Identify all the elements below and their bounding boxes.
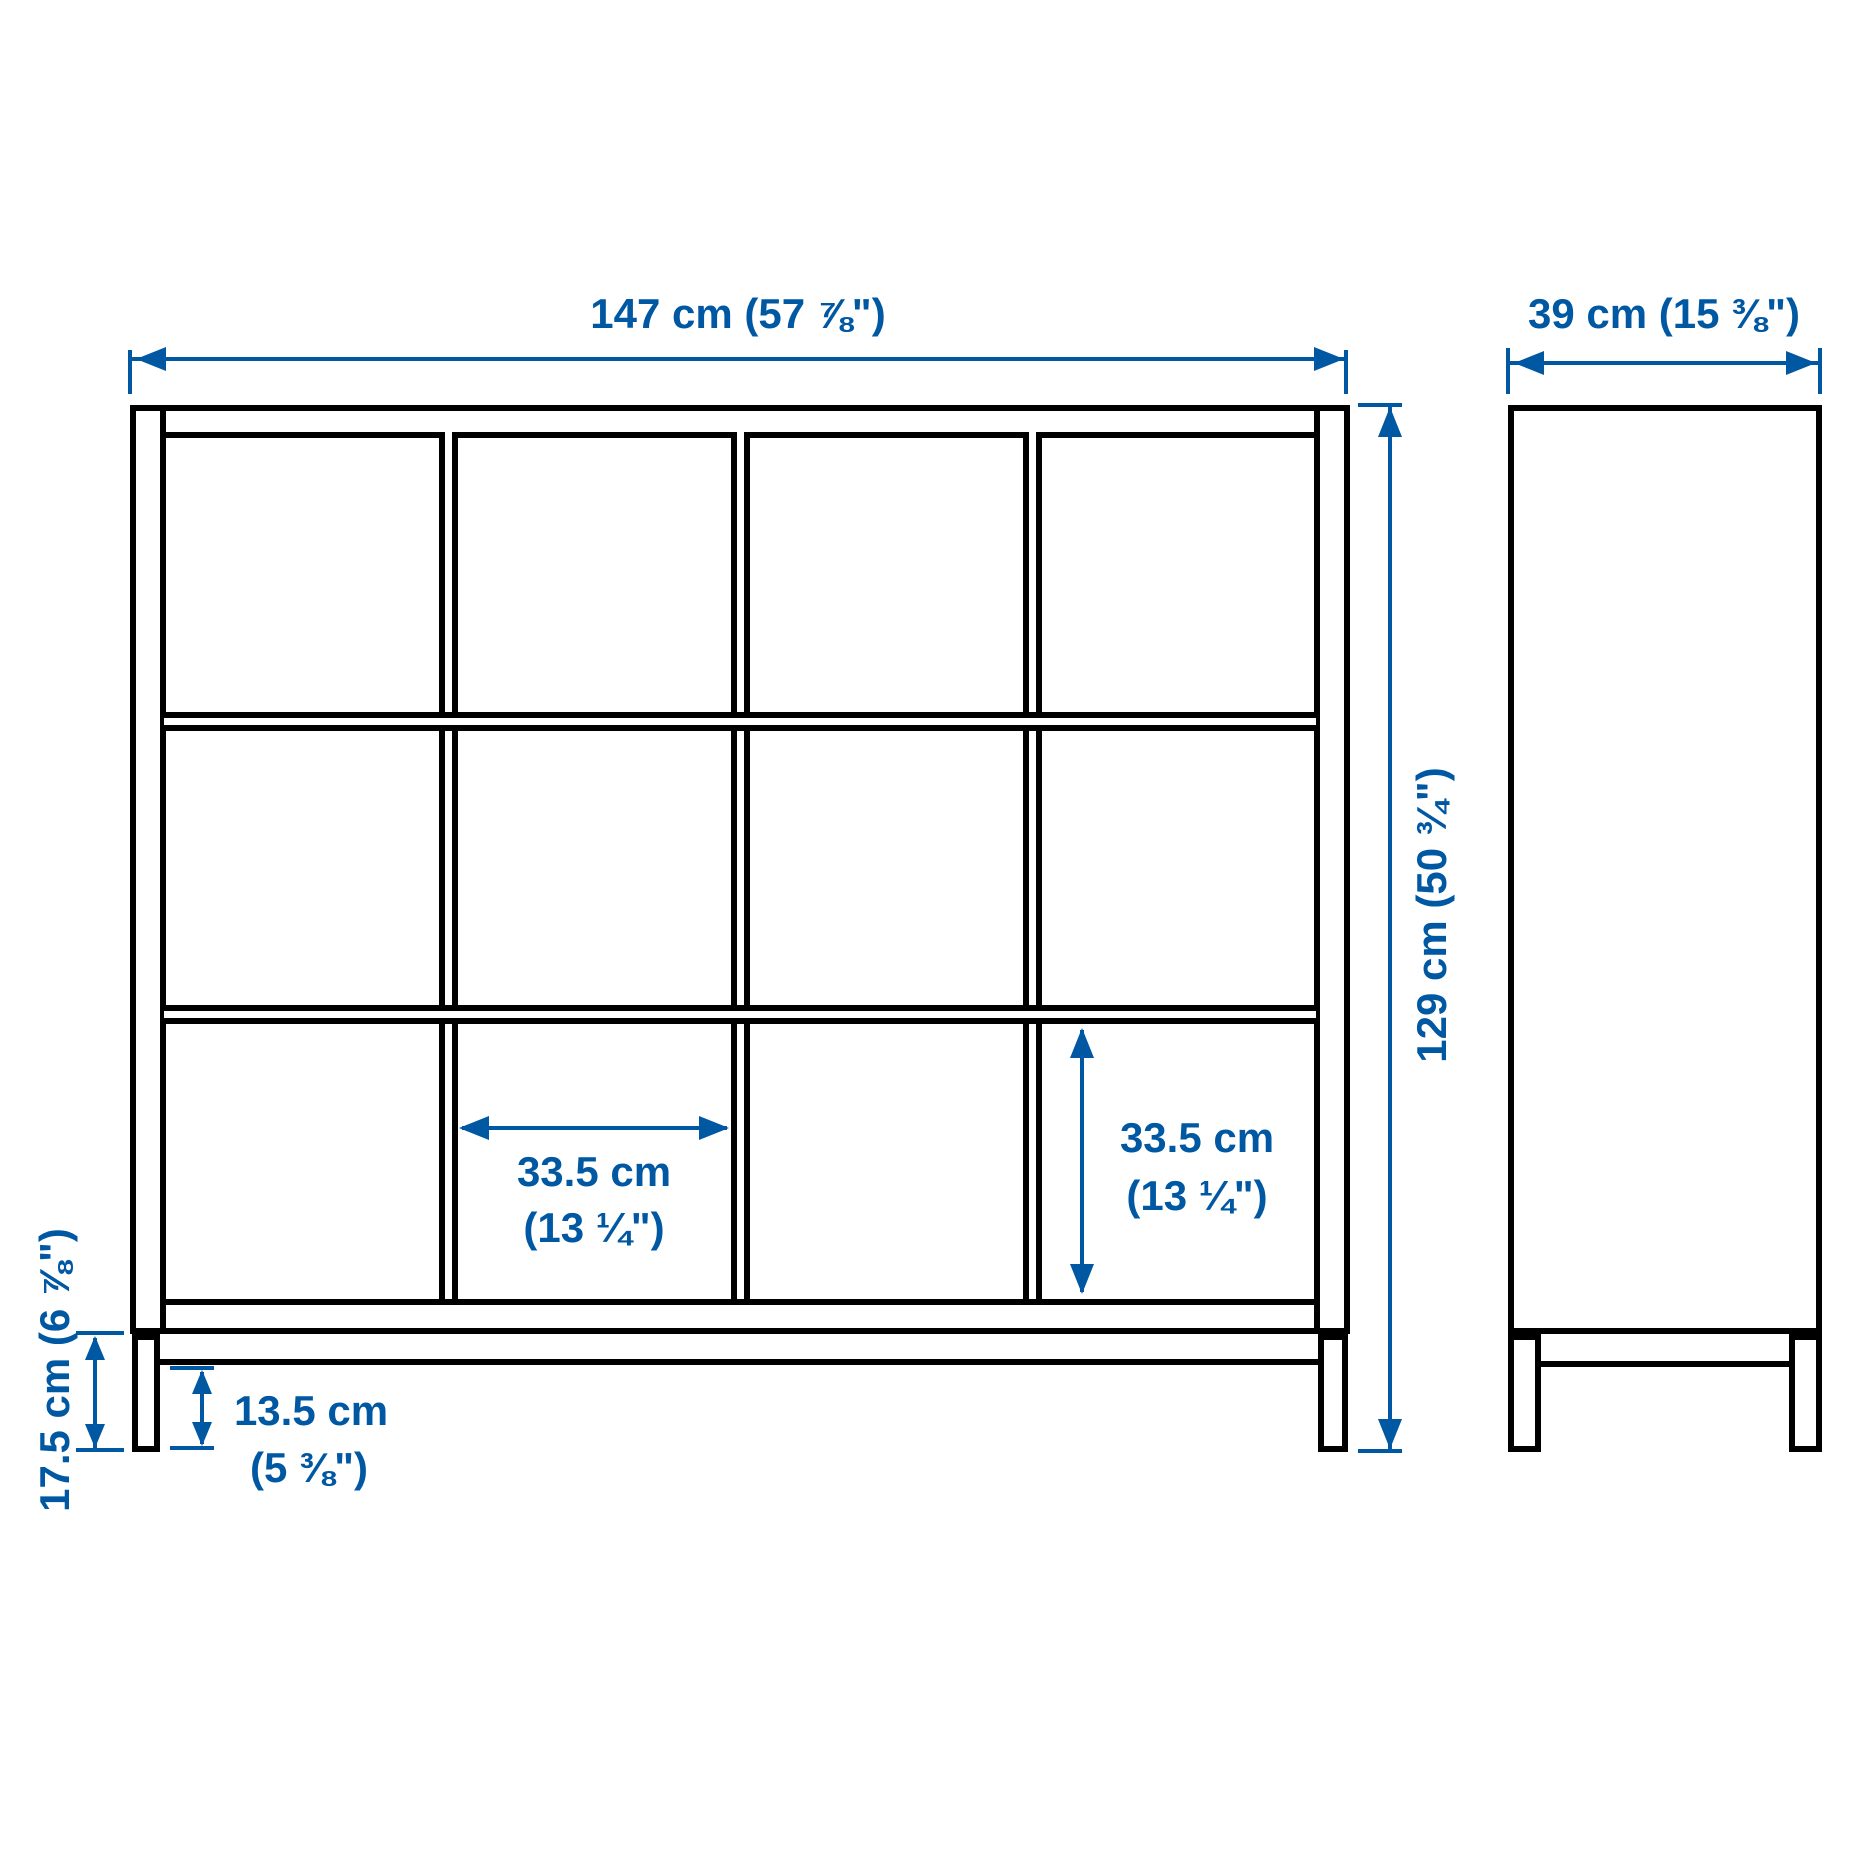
underframe-clearance-label-line1: 13.5 cm	[234, 1388, 388, 1434]
arrowhead-up-icon	[192, 1370, 212, 1394]
furniture-dimension-diagram: 147 cm (57 ⅞") 39 cm (15 ⅜") 129 cm (50 …	[0, 0, 1860, 1860]
underframe-clearance-label-line2: (5 ⅜")	[250, 1445, 368, 1491]
dim-underframe-clearance-tick-bottom	[170, 1446, 214, 1450]
dim-underframe-clearance: 13.5 cm (5 ⅜")	[0, 0, 1860, 1860]
arrowhead-down-icon	[192, 1422, 212, 1446]
